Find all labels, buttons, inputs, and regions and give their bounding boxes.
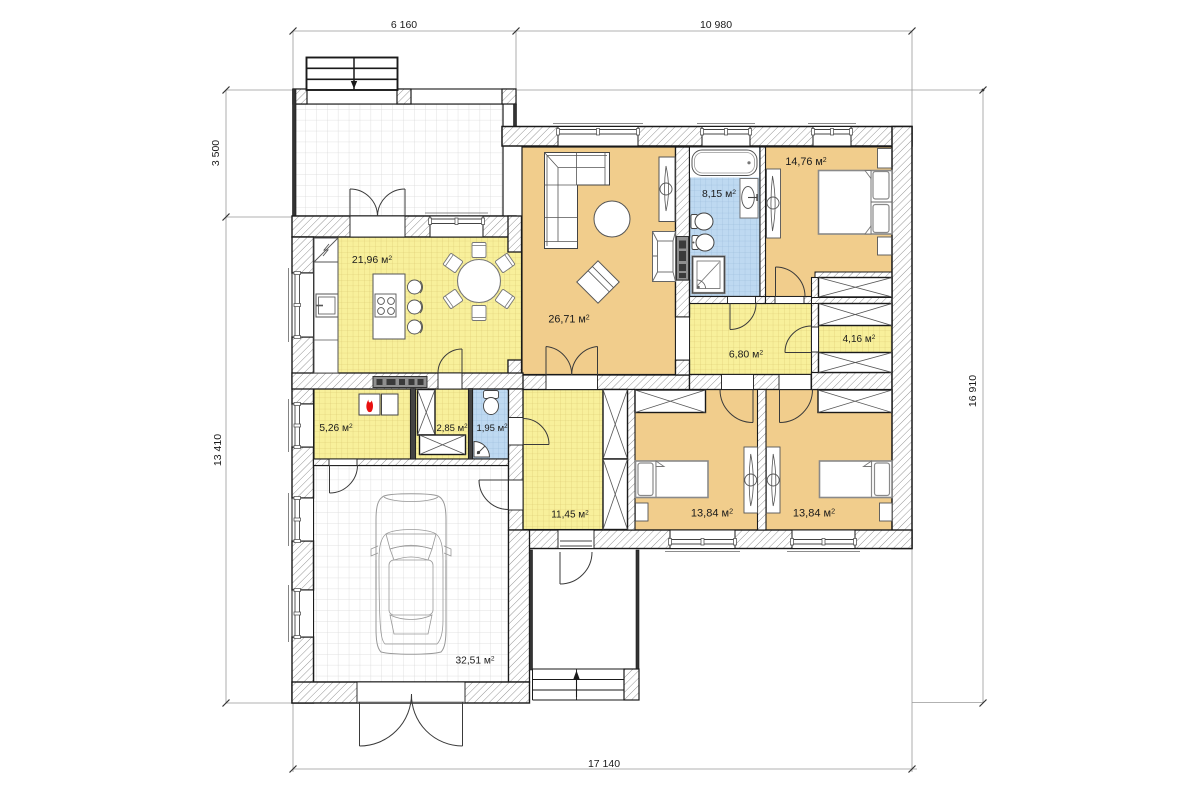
svg-text:3 500: 3 500 xyxy=(210,140,222,166)
svg-text:16 910: 16 910 xyxy=(967,375,979,407)
svg-text:14,76 м2: 14,76 м2 xyxy=(785,156,826,168)
svg-text:17 140: 17 140 xyxy=(588,758,620,770)
svg-text:2,85 м2: 2,85 м2 xyxy=(436,423,468,434)
svg-text:13,84 м2: 13,84 м2 xyxy=(793,506,835,519)
svg-text:10 980: 10 980 xyxy=(700,19,732,31)
svg-text:1,95 м2: 1,95 м2 xyxy=(476,423,508,434)
svg-text:4,16 м2: 4,16 м2 xyxy=(843,334,876,345)
svg-text:26,71 м2: 26,71 м2 xyxy=(548,314,589,326)
svg-text:21,96 м2: 21,96 м2 xyxy=(352,254,392,266)
svg-text:11,45 м2: 11,45 м2 xyxy=(551,509,589,520)
svg-text:6,80 м2: 6,80 м2 xyxy=(729,349,764,361)
svg-text:13,84 м2: 13,84 м2 xyxy=(691,506,733,519)
svg-text:8,15 м2: 8,15 м2 xyxy=(702,189,736,200)
svg-text:13 410: 13 410 xyxy=(212,434,224,466)
svg-text:32,51 м2: 32,51 м2 xyxy=(456,655,495,666)
svg-text:5,26 м2: 5,26 м2 xyxy=(319,423,353,434)
svg-text:6 160: 6 160 xyxy=(391,19,417,31)
